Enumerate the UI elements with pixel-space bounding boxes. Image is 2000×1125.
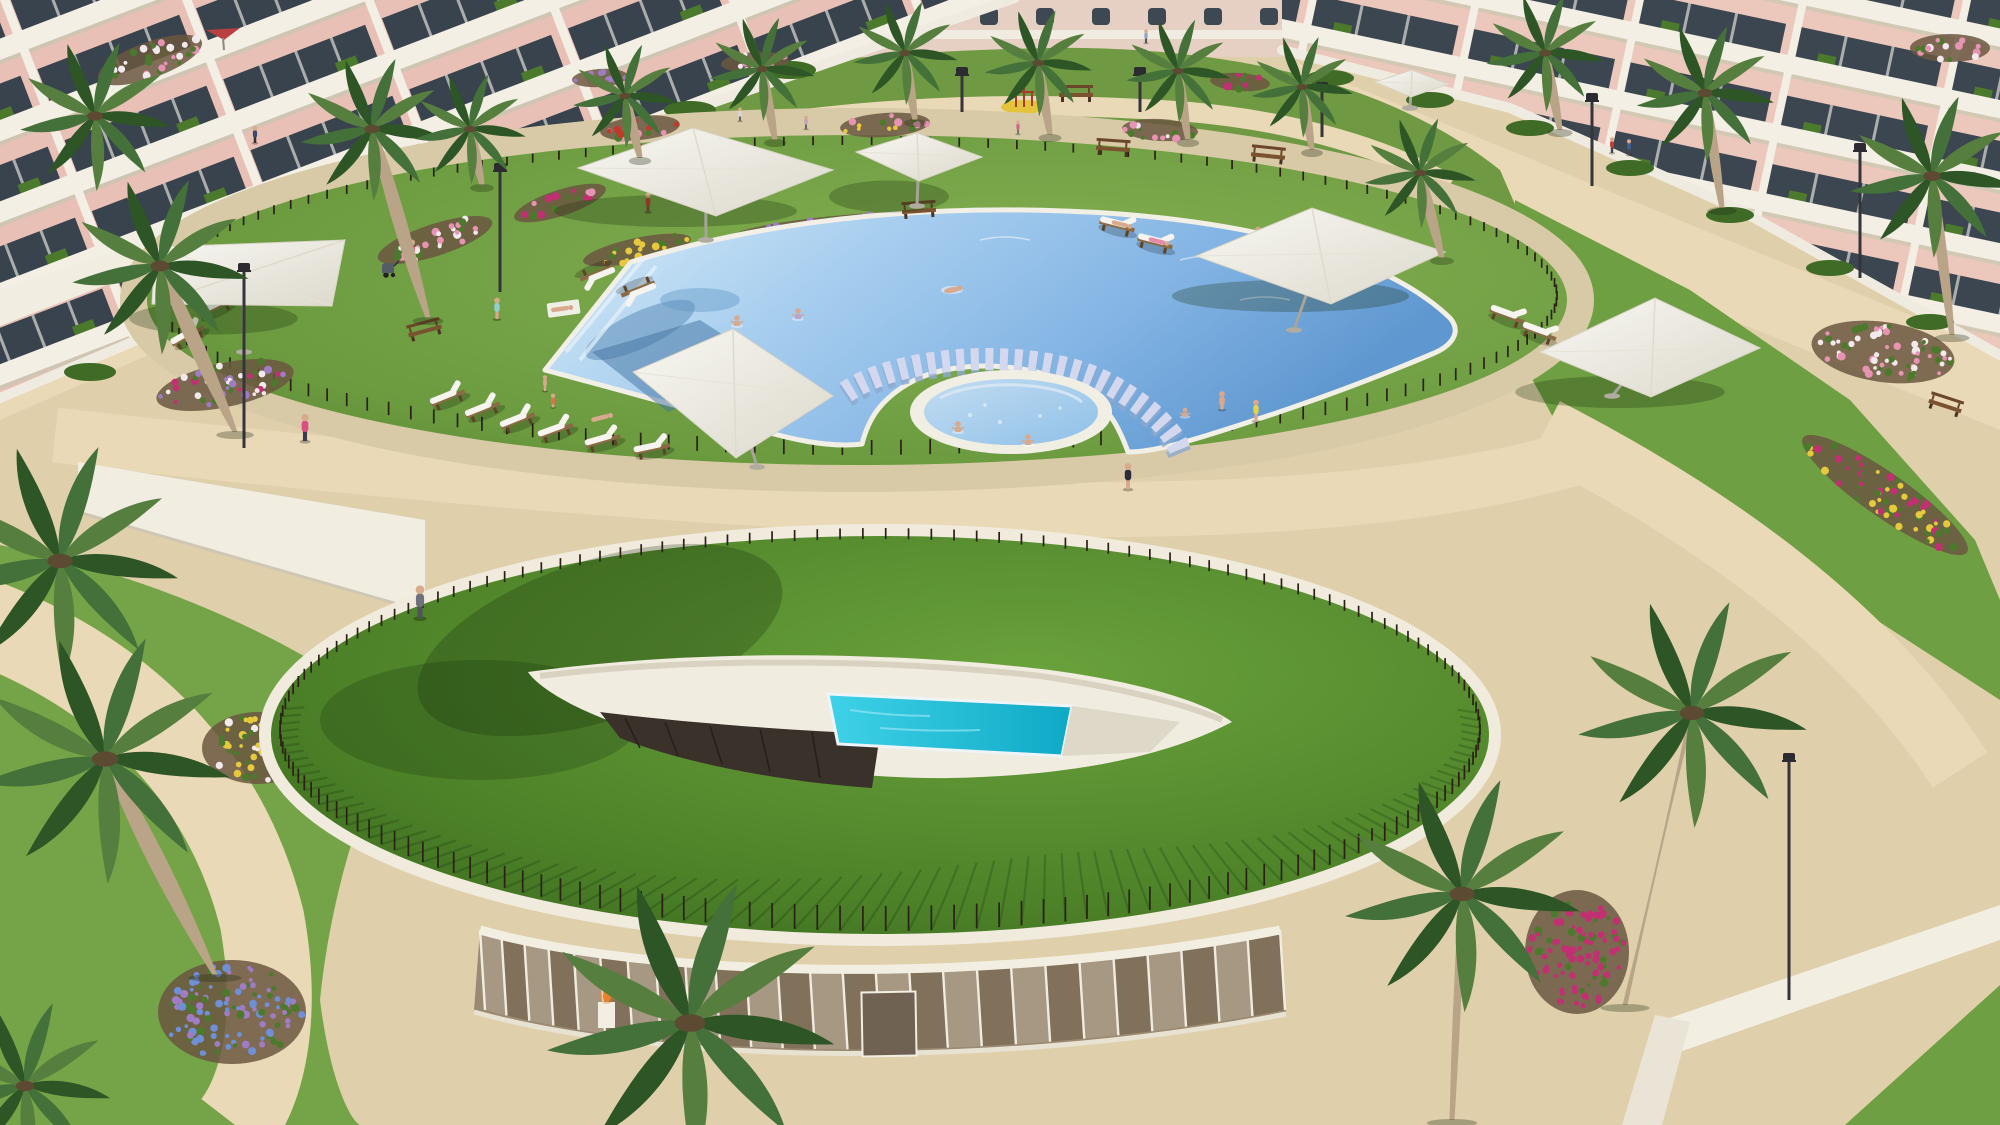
entrance-door xyxy=(861,992,916,1057)
render-viewport xyxy=(0,0,2000,1125)
resort-aerial-render xyxy=(0,0,2000,1125)
indoor-pool xyxy=(828,694,1072,756)
jacuzzi xyxy=(910,370,1112,454)
